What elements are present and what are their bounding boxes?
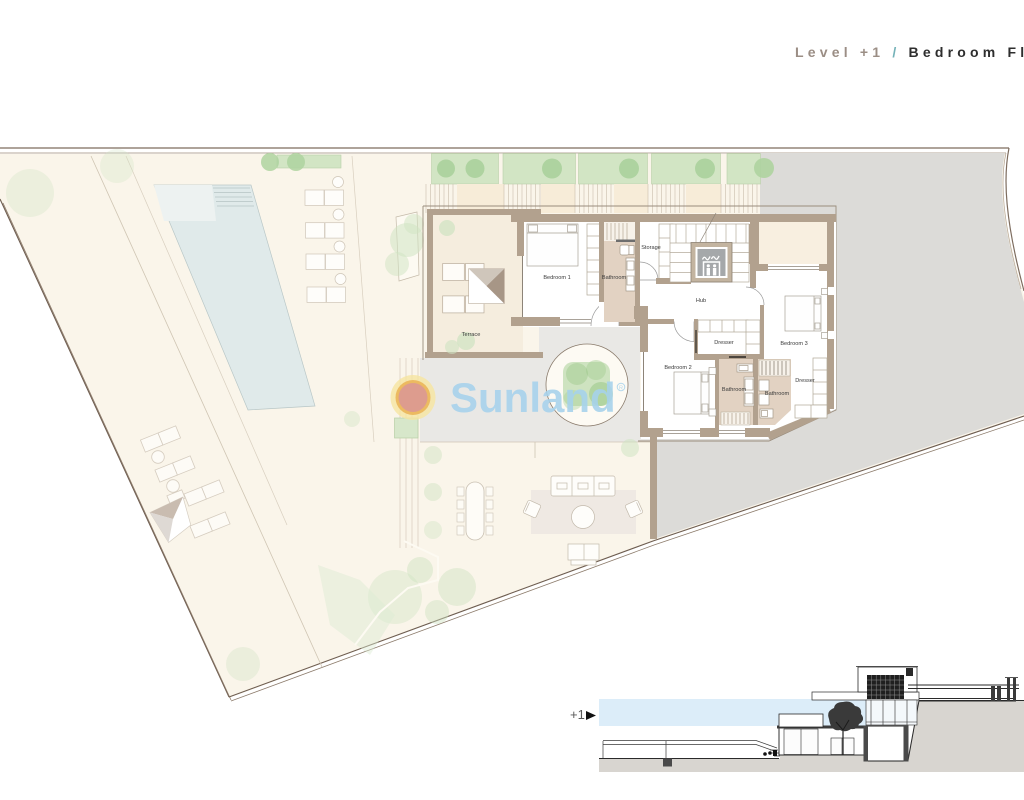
svg-text:R: R <box>619 386 623 392</box>
svg-text:+1: +1 <box>570 707 585 722</box>
svg-text:Level +1 / Bedroom Floor: Level +1 / Bedroom Floor <box>795 44 1024 60</box>
svg-text:Dresser: Dresser <box>795 378 815 384</box>
svg-text:Storage: Storage <box>641 245 661 251</box>
svg-text:Terrace: Terrace <box>462 332 481 338</box>
svg-text:Bathroom: Bathroom <box>722 387 747 393</box>
svg-text:Hub: Hub <box>696 298 706 304</box>
svg-text:Bedroom 3: Bedroom 3 <box>780 341 807 347</box>
svg-text:Bathroom: Bathroom <box>602 275 627 281</box>
svg-text:Bedroom 1: Bedroom 1 <box>543 275 570 281</box>
svg-text:Sunland: Sunland <box>450 374 616 421</box>
svg-text:Dresser: Dresser <box>714 340 734 346</box>
svg-text:Bedroom 2: Bedroom 2 <box>664 365 691 371</box>
svg-text:Bathroom: Bathroom <box>765 391 790 397</box>
